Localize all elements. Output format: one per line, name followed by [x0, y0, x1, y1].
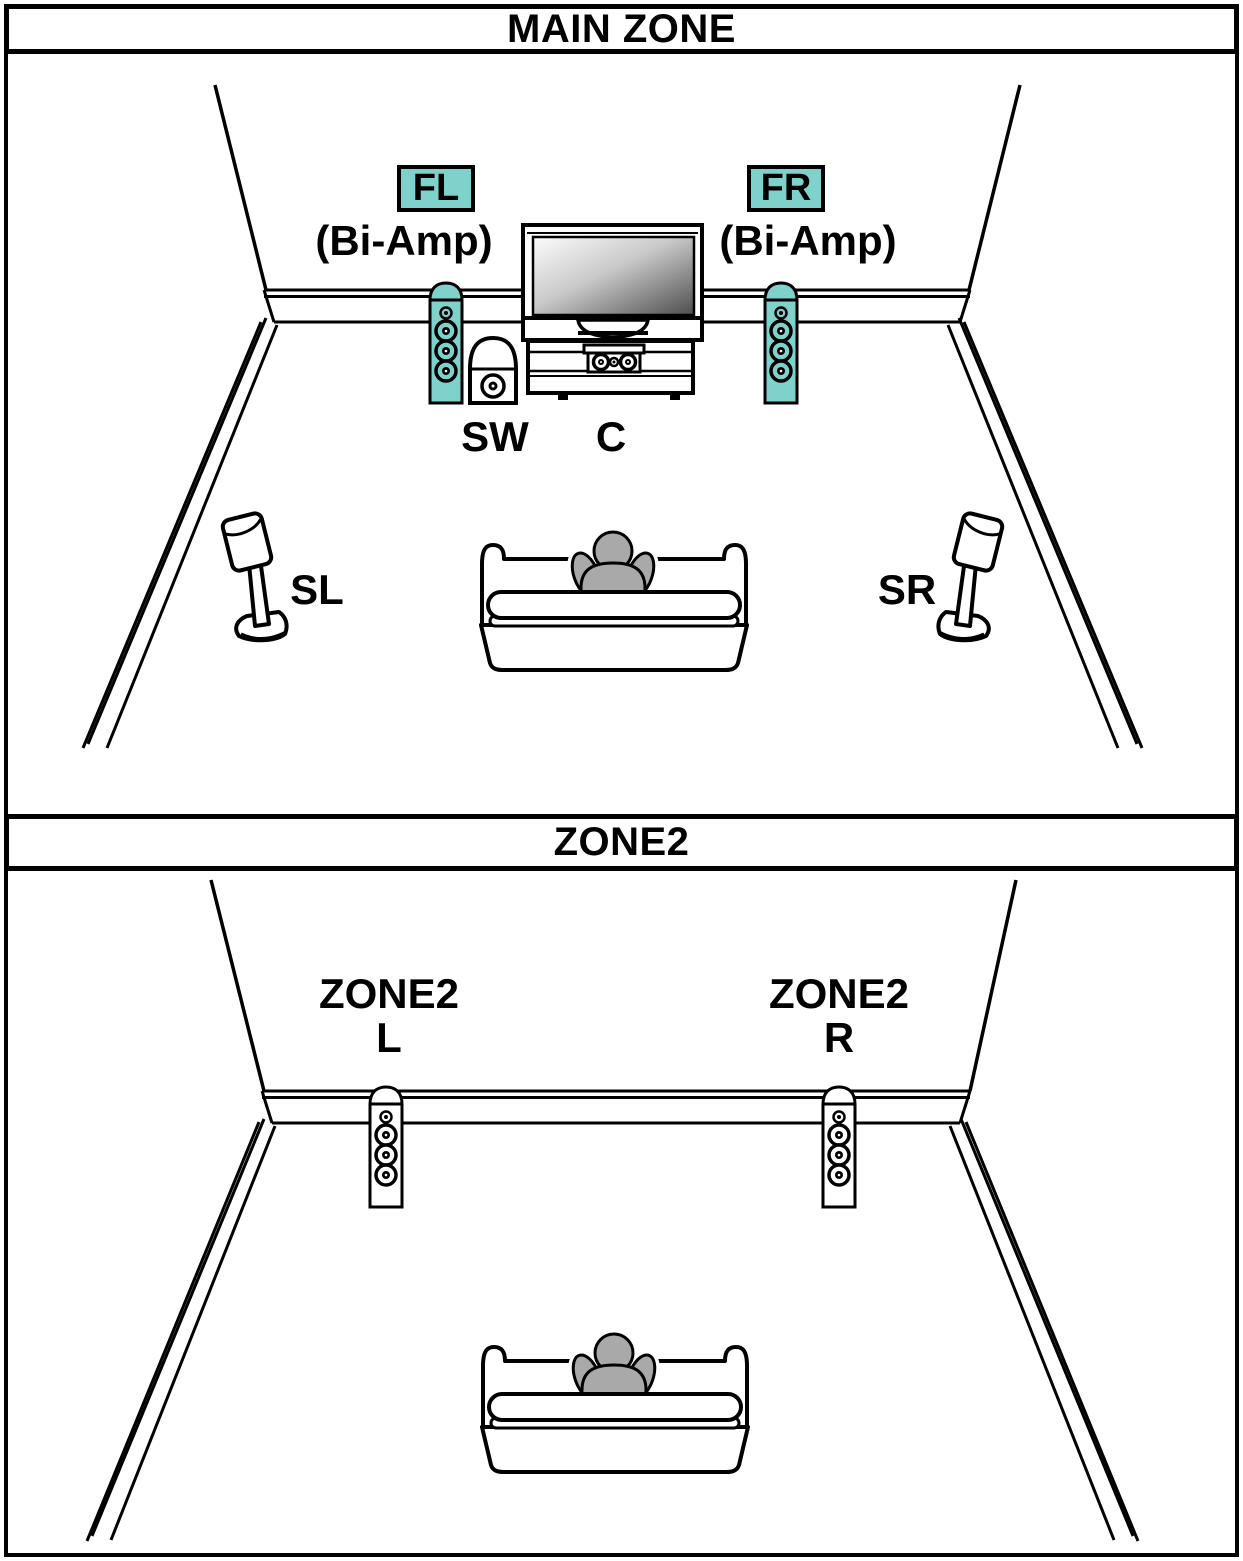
zone2-left-label-line1: ZONE2 — [319, 972, 459, 1016]
speaker-layout-diagram: MAIN ZONE ZONE2 — [0, 0, 1243, 1561]
front-left-tag-text: FL — [413, 167, 459, 210]
zone2-right-label-line1: ZONE2 — [769, 972, 909, 1016]
center-label: C — [596, 415, 626, 459]
zone2-title-bar: ZONE2 — [4, 814, 1239, 871]
front-right-mode-label: (Bi-Amp) — [719, 219, 896, 263]
zone2-title: ZONE2 — [554, 820, 690, 865]
front-right-tag-text: FR — [761, 167, 812, 210]
front-left-tag: FL — [397, 165, 475, 212]
zone2-left-label: ZONE2 L — [319, 972, 459, 1060]
front-right-tag: FR — [747, 165, 825, 212]
surround-right-label: SR — [878, 568, 936, 612]
main-zone-title-bar: MAIN ZONE — [4, 4, 1239, 54]
zone2-panel — [4, 867, 1239, 1557]
zone2-right-label: ZONE2 R — [769, 972, 909, 1060]
main-zone-title: MAIN ZONE — [507, 7, 736, 52]
surround-left-label: SL — [290, 568, 344, 612]
front-left-mode-label: (Bi-Amp) — [315, 219, 492, 263]
zone2-left-label-line2: L — [319, 1016, 459, 1060]
zone2-right-label-line2: R — [769, 1016, 909, 1060]
subwoofer-label: SW — [461, 415, 529, 459]
